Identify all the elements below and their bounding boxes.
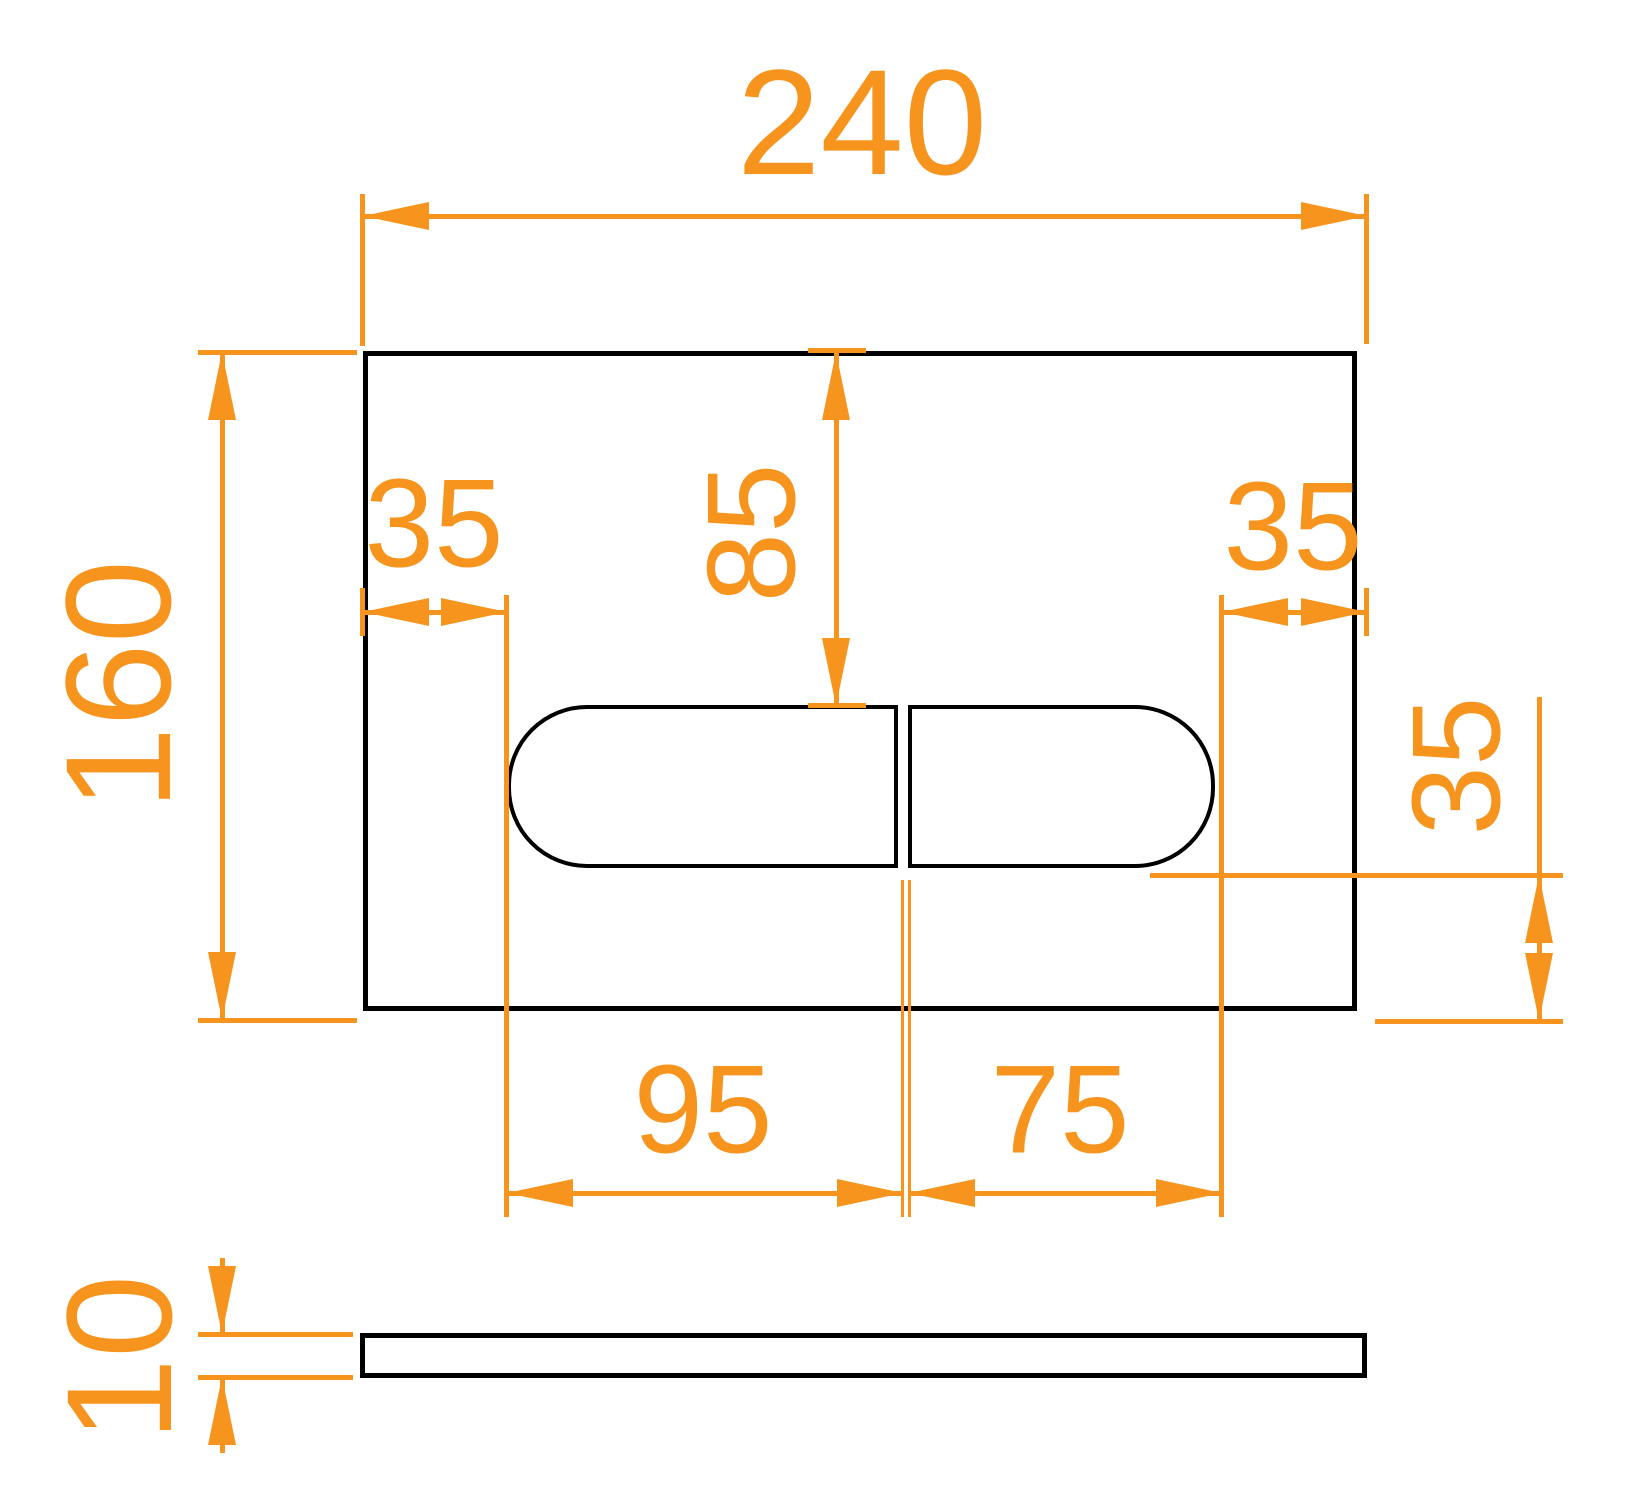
dim-95-arrow-right: [837, 1179, 903, 1207]
button-to-bottom-label: 35: [1395, 696, 1520, 835]
dim-35-right-arrow-right: [1301, 598, 1367, 626]
dim-35-side-arrow-bottom: [1525, 953, 1553, 1021]
drawing-canvas: 240 160 85 35 35 95 75 35: [0, 0, 1625, 1503]
dim-160-line: [220, 352, 225, 1020]
button-left-edge-extension: [504, 595, 509, 1217]
dim-240-arrow-right: [1301, 202, 1367, 230]
dim-85-arrow-top: [822, 352, 850, 420]
dim-240-line: [363, 214, 1367, 219]
left-button-margin-label: 35: [364, 462, 503, 587]
dim-95-arrow-left: [507, 1179, 573, 1207]
dim-160-arrow-bottom: [208, 952, 236, 1020]
dim-240-arrow-left: [363, 202, 429, 230]
top-to-button-label: 85: [690, 463, 815, 602]
dim-35-side-extension-top: [1150, 873, 1563, 878]
dim-35-left-arrow-right: [441, 598, 507, 626]
right-button-margin-label: 35: [1223, 465, 1362, 590]
left-button-outline: [507, 705, 898, 868]
dim-10-arrow-top: [208, 1266, 236, 1334]
dim-35-left-arrow-left: [363, 598, 429, 626]
divider-extension-right: [908, 880, 911, 1217]
plate-width-label: 240: [737, 47, 987, 197]
right-button-outline: [908, 705, 1215, 868]
plate-outline: [363, 351, 1357, 1011]
right-button-width-label: 75: [990, 1048, 1129, 1173]
dim-35-side-arrow-top: [1525, 875, 1553, 943]
dim-75-arrow-left: [909, 1179, 975, 1207]
plate-height-label: 160: [43, 560, 193, 810]
dim-75-arrow-right: [1156, 1179, 1222, 1207]
dim-160-arrow-top: [208, 352, 236, 420]
button-right-edge-extension: [1219, 595, 1224, 1217]
dim-10-arrow-bottom: [208, 1377, 236, 1445]
side-view-outline: [360, 1333, 1367, 1378]
divider-extension-left: [901, 880, 904, 1217]
dim-85-arrow-bottom: [822, 638, 850, 706]
left-button-width-label: 95: [633, 1048, 772, 1173]
dim-35-right-arrow-left: [1222, 598, 1288, 626]
thickness-label: 10: [44, 1275, 194, 1442]
